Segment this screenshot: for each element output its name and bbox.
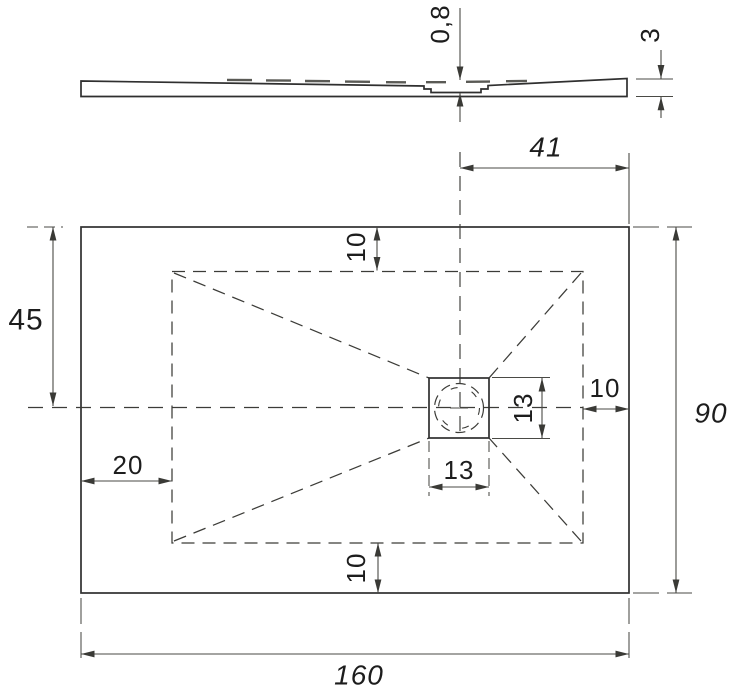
dim-label-10-bottom: 10	[341, 553, 371, 584]
tray-outline	[81, 227, 629, 593]
dimension-edge-thickness: 3	[635, 27, 673, 118]
dim-label-41: 41	[529, 132, 562, 163]
dimension-half-height: 45	[8, 227, 63, 406]
drawing-page: 0,8 3	[0, 0, 734, 689]
dimension-overall-height: 90	[633, 227, 728, 593]
dimension-drain-size-horizontal: 13	[429, 441, 489, 496]
dim-label-20: 20	[113, 450, 144, 480]
dim-label-10-right: 10	[590, 373, 621, 403]
dim-label-edge-thickness: 3	[635, 27, 665, 42]
dim-label-45: 45	[8, 304, 43, 337]
dim-label-recess-depth: 0,8	[425, 4, 455, 43]
shower-tray-technical-drawing: 0,8 3	[0, 0, 734, 689]
dimension-inset-top: 10	[341, 227, 377, 271]
dimension-left-to-inner: 20	[81, 450, 172, 481]
dimension-overall-width: 160	[81, 598, 629, 689]
dimension-inset-bottom: 10	[341, 543, 378, 593]
dim-label-10-top: 10	[341, 232, 371, 263]
centerlines	[28, 152, 583, 438]
dim-label-90: 90	[694, 398, 727, 429]
dim-label-160: 160	[334, 660, 384, 689]
dimension-drain-center-from-right: 41	[460, 132, 629, 225]
dimension-recess-depth: 0,8	[425, 4, 460, 122]
surface-texture-dashes	[227, 80, 527, 82]
side-view-section: 0,8 3	[81, 4, 673, 122]
dim-label-13-bottom: 13	[444, 455, 475, 485]
dim-label-13-right: 13	[508, 393, 538, 424]
plan-view: 41 45 10 10 13 13	[8, 132, 727, 689]
dimension-inset-right: 10	[583, 373, 629, 409]
